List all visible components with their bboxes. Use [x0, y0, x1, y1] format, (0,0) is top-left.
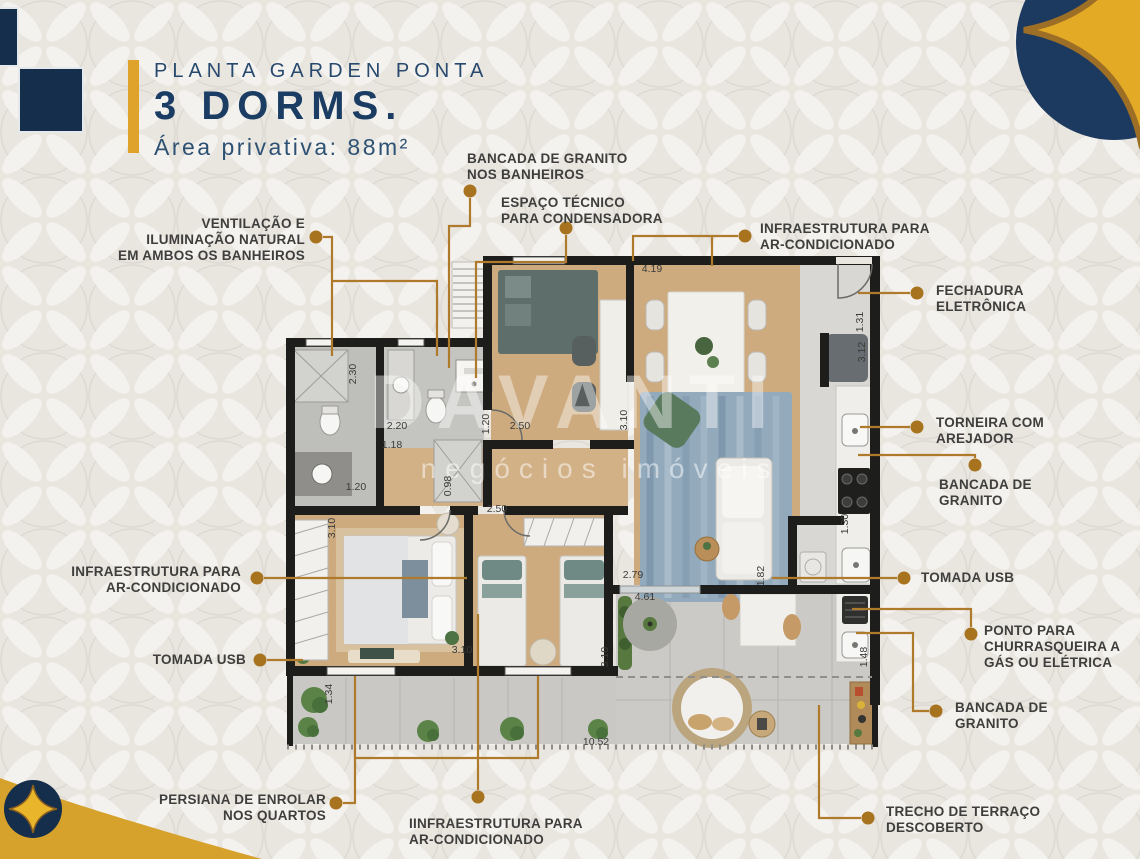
callout-dot-torneira-arejador [911, 421, 924, 434]
callout-dot-infra-ar-topo [739, 230, 752, 243]
callout-dot-persiana [330, 797, 343, 810]
plan-kicker: PLANTA GARDEN PONTA [154, 60, 488, 83]
gold-bar-icon [128, 60, 139, 153]
dimension-label: 1.20 [480, 414, 492, 435]
brochure-page: DAVANTI negócios imóveis 4.192.302.201.1… [0, 0, 1140, 859]
dimension-label: 3.10 [618, 410, 630, 431]
watermark-tagline: negócios imóveis [421, 453, 780, 484]
callout-dot-espaco-tecnico [560, 222, 573, 235]
page-title: 3 DORMS. [154, 84, 488, 129]
dimension-label: 3.10 [599, 647, 611, 668]
dimension-label: 0.98 [442, 476, 454, 497]
callout-dot-bancada-banheiros [464, 185, 477, 198]
callout-dot-ventilacao [310, 231, 323, 244]
callout-dot-bancada-churrasqueira [930, 705, 943, 718]
callout-dot-fechadura-eletronica [911, 287, 924, 300]
dimension-label: 2.79 [623, 569, 644, 581]
dimension-label: 3.10 [452, 644, 473, 656]
plan-subtitle: Área privativa: 88m² [154, 134, 488, 161]
dimension-label: 1.82 [755, 566, 767, 587]
callout-dot-tomada-usb-esquerda [254, 654, 267, 667]
dimension-label: 2.50 [487, 503, 508, 515]
dimension-label: 1.18 [382, 439, 403, 451]
dimension-label: 2.30 [347, 364, 359, 385]
callout-dot-bancada-cozinha [969, 459, 982, 472]
dimension-label: 1.34 [323, 684, 335, 705]
callout-dot-tomada-usb-direita [898, 572, 911, 585]
callout-dot-infra-ar-quartos [472, 791, 485, 804]
dimension-label: 1.31 [854, 312, 866, 333]
wardrobe-2 [524, 518, 606, 546]
dimension-label: 4.61 [635, 591, 656, 603]
callout-dot-trecho-terraco [862, 812, 875, 825]
watermark: DAVANTI negócios imóveis [370, 360, 781, 484]
callout-dot-churrasqueira [965, 628, 978, 641]
dimension-label: 3.10 [326, 518, 338, 539]
header: PLANTA GARDEN PONTA 3 DORMS. Área privat… [128, 60, 488, 161]
callout-dot-infra-ar-esquerda [251, 572, 264, 585]
dimension-label: 3.12 [856, 342, 868, 363]
dimension-label: 10.52 [583, 736, 609, 748]
dimension-label: 1.48 [858, 647, 870, 668]
dimension-label: 1.20 [346, 481, 367, 493]
dimension-label: 1.30 [839, 514, 851, 535]
dimension-label: 4.19 [642, 263, 663, 275]
watermark-brand: DAVANTI [370, 360, 781, 445]
dimension-label: 2.20 [387, 420, 408, 432]
wardrobe-1 [294, 520, 328, 660]
dimension-label: 2.50 [510, 420, 531, 432]
